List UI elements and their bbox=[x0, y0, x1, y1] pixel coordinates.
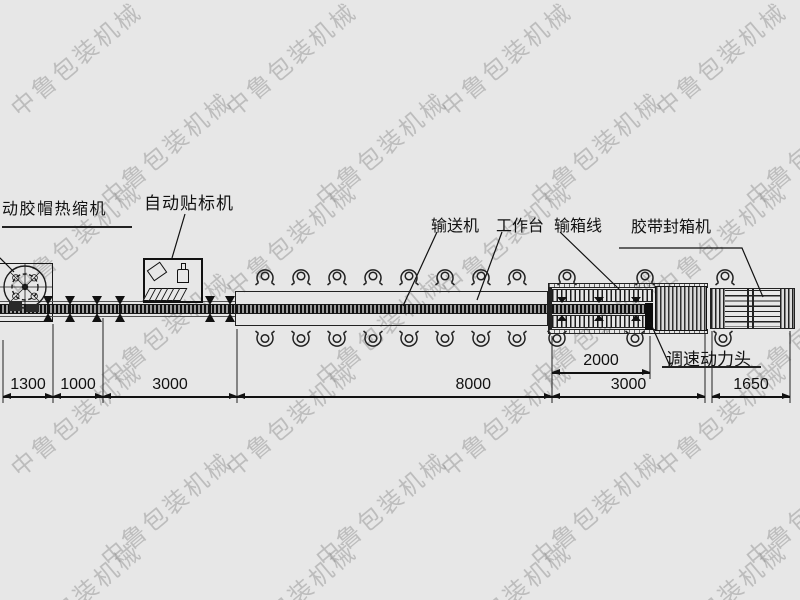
worktable-outline bbox=[235, 291, 548, 326]
watermark-text: 中鲁包装机械 bbox=[2, 0, 149, 123]
label-labeling-machine: 自动贴标机 bbox=[144, 189, 234, 214]
label-box-line: 输箱线 bbox=[554, 212, 602, 236]
watermark-text: 中鲁包装机械 bbox=[217, 353, 364, 484]
watermark-text: 中鲁包装机械 bbox=[432, 533, 579, 600]
label-power-head-underline bbox=[662, 366, 761, 368]
watermark-text: 中鲁包装机械 bbox=[647, 0, 794, 123]
belt-clamp-arrow bbox=[631, 315, 641, 321]
roller-conveyor-left-cap bbox=[711, 289, 725, 328]
roller-conveyor-divider bbox=[752, 289, 754, 328]
watermark-text: 中鲁包装机械 bbox=[217, 173, 364, 304]
dimension-value: 1300 bbox=[10, 376, 46, 394]
belt-clamp-arrow bbox=[594, 297, 604, 303]
dimension-value: 1000 bbox=[60, 376, 96, 394]
carton-sealer-block bbox=[655, 286, 707, 331]
roller-conveyor-outline bbox=[710, 288, 795, 329]
watermark-text: 中鲁包装机械 bbox=[217, 533, 364, 600]
belt-clamp-arrow bbox=[594, 315, 604, 321]
label-carton-sealer: 胶带封箱机 bbox=[631, 213, 711, 237]
roller-conveyor-divider bbox=[747, 289, 749, 328]
watermark-text: 中鲁包装机械 bbox=[217, 0, 364, 123]
bottle-icon bbox=[177, 269, 189, 283]
label-heat-shrink-underline bbox=[2, 226, 132, 228]
watermark-text: 中鲁包装机械 bbox=[647, 533, 794, 600]
dimension-value: 2000 bbox=[583, 352, 619, 370]
belt-clamp-arrow bbox=[631, 297, 641, 303]
belt-guide-line bbox=[0, 316, 236, 317]
dimension-value: 8000 bbox=[455, 376, 491, 394]
dimension-value: 1650 bbox=[733, 376, 769, 394]
dimension-value: 3000 bbox=[611, 376, 647, 394]
power-head-block bbox=[645, 303, 653, 330]
watermark-text: 中鲁包装机械 bbox=[647, 353, 794, 484]
belt-clamp-arrow bbox=[557, 297, 567, 303]
watermark-text: 中鲁包装机械 bbox=[2, 533, 149, 600]
roller-conveyor-right-cap bbox=[780, 289, 794, 328]
label-conveyor: 输送机 bbox=[431, 212, 479, 236]
belt-clamp-arrow bbox=[557, 315, 567, 321]
label-worktable: 工作台 bbox=[496, 212, 544, 236]
packaging-line-layout-drawing: 中鲁包装机械中鲁包装机械中鲁包装机械中鲁包装机械中鲁包装机械中鲁包装机械中鲁包装… bbox=[0, 0, 800, 600]
watermark-text: 中鲁包装机械 bbox=[2, 353, 149, 484]
dimension-value: 3000 bbox=[152, 376, 188, 394]
auger-screw bbox=[146, 288, 202, 302]
box-line-end-cap bbox=[548, 288, 552, 329]
watermark-text: 中鲁包装机械 bbox=[432, 0, 579, 123]
label-heat-shrink-machine: 动胶帽热缩机 bbox=[2, 195, 107, 219]
